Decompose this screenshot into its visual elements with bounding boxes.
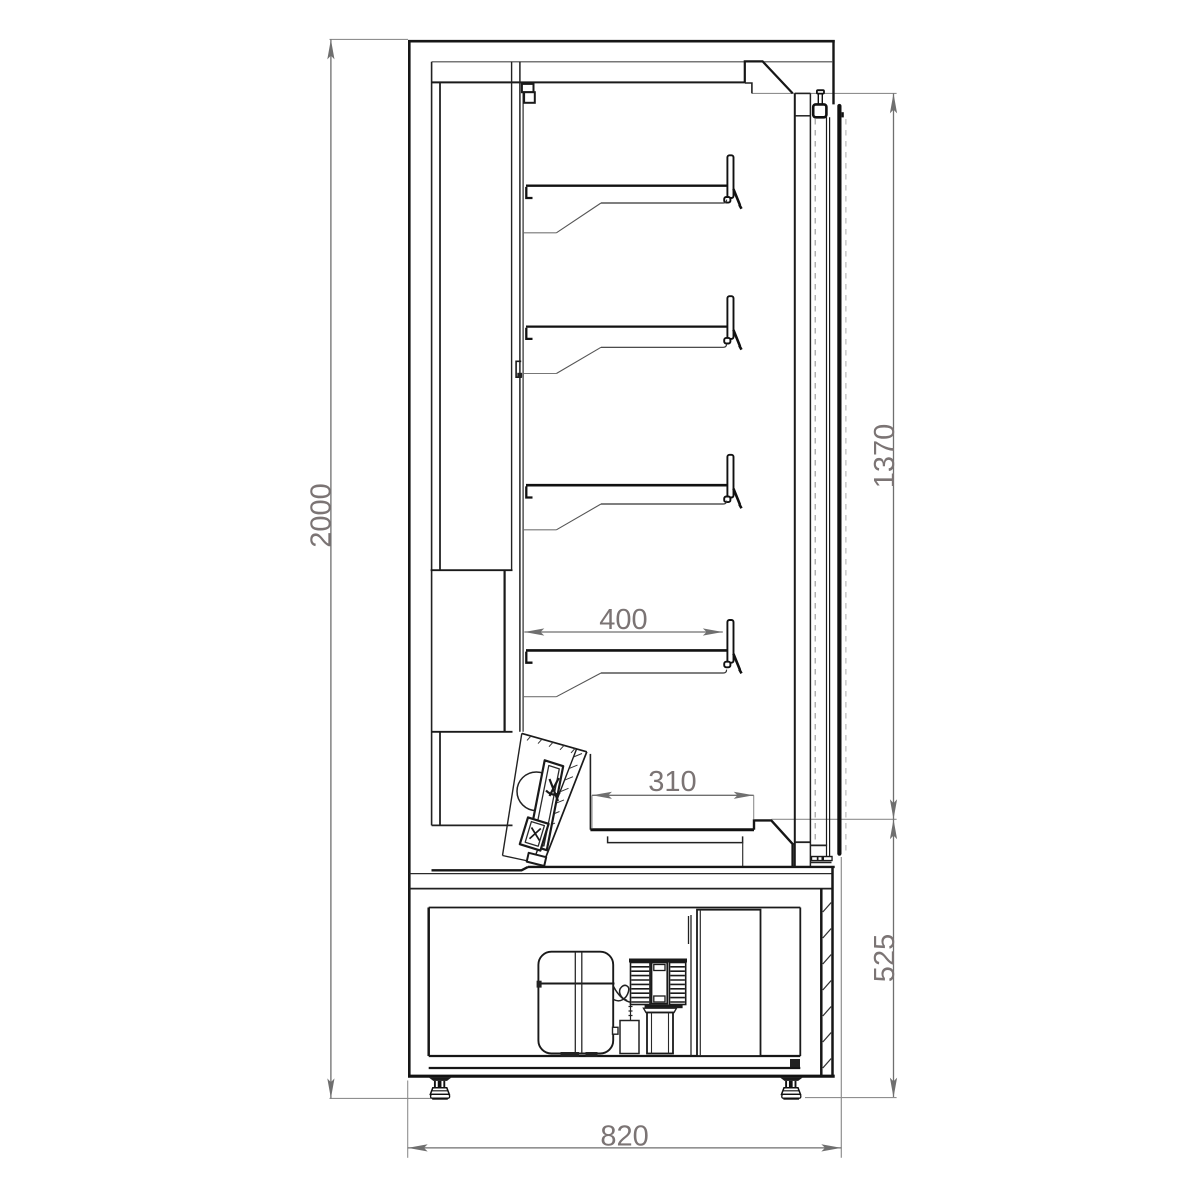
svg-text:2000: 2000 bbox=[306, 483, 338, 548]
svg-text:400: 400 bbox=[599, 604, 647, 636]
svg-text:525: 525 bbox=[869, 934, 901, 982]
svg-text:1370: 1370 bbox=[869, 424, 901, 489]
svg-text:820: 820 bbox=[600, 1121, 648, 1153]
svg-text:310: 310 bbox=[648, 766, 696, 798]
